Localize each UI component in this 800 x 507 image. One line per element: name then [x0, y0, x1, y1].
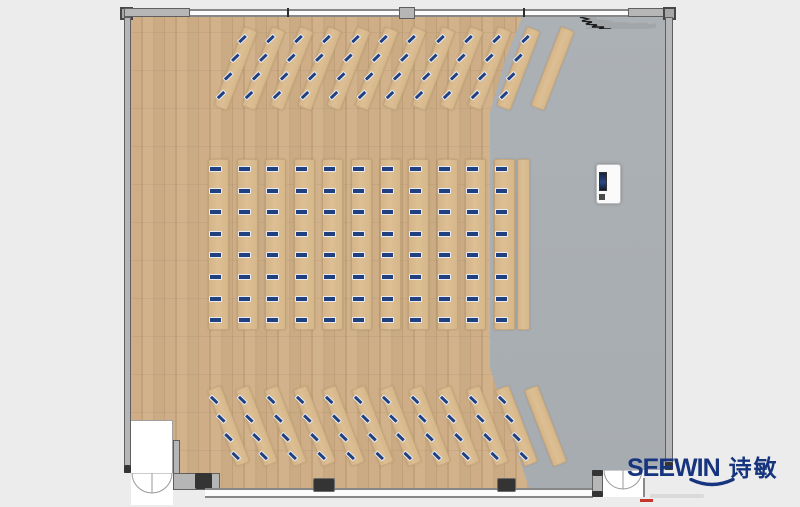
laptop-seat [484, 52, 495, 63]
laptop-seat [323, 166, 336, 172]
laptop-seat [222, 70, 233, 81]
laptop-seat [266, 188, 279, 194]
laptop-seat [420, 70, 431, 81]
laptop-seat [409, 188, 422, 194]
left-wall-end-cap [124, 465, 131, 473]
laptop-seat [406, 33, 417, 44]
laptop-seat [266, 296, 279, 302]
laptop-seat [438, 166, 451, 172]
laptop-seat [323, 394, 334, 405]
laptop-seat [257, 52, 268, 63]
laptop-seat [495, 274, 508, 280]
laptop-seat [498, 89, 509, 100]
laptop-seat [381, 166, 394, 172]
laptop-seat [266, 231, 279, 237]
laptop-seat [323, 231, 336, 237]
laptop-seat [244, 413, 255, 424]
laptop-seat [229, 52, 240, 63]
laptop-seat [238, 209, 251, 215]
laptop-seat [409, 317, 422, 323]
laptop-seat [366, 432, 377, 443]
laptop-seat [467, 394, 478, 405]
laptop-seat [238, 231, 251, 237]
laptop-seat [495, 188, 508, 194]
laptop-seat [352, 231, 365, 237]
laptop-seat [378, 33, 389, 44]
laptop-seat [238, 274, 251, 280]
water-dispenser [596, 164, 621, 204]
laptop-seat [495, 252, 508, 258]
laptop-seat [302, 413, 313, 424]
laptop-seat [345, 450, 356, 461]
laptop-seat [323, 188, 336, 194]
laptop-seat [266, 274, 279, 280]
laptop-seat [453, 432, 464, 443]
laptop-seat [321, 33, 332, 44]
laptop-seat [238, 296, 251, 302]
laptop-seat [466, 188, 479, 194]
laptop-seat [209, 209, 222, 215]
top-wall-post [399, 7, 415, 19]
laptop-seat [356, 89, 367, 100]
laptop-seat [399, 52, 410, 63]
laptop-seat [323, 209, 336, 215]
logo-smile-arc-icon [689, 478, 735, 489]
laptop-seat [209, 231, 222, 237]
laptop-seat [352, 317, 365, 323]
laptop-seat [395, 432, 406, 443]
laptop-seat [243, 89, 254, 100]
laptop-seat [381, 209, 394, 215]
laptop-seat [352, 188, 365, 194]
laptop-seat [237, 394, 248, 405]
laptop-seat [495, 317, 508, 323]
laptop-seat [512, 52, 523, 63]
laptop-seat [295, 274, 308, 280]
laptop-seat [495, 231, 508, 237]
laptop-seat [503, 413, 514, 424]
laptop-seat [208, 394, 219, 405]
laptop-seat [381, 296, 394, 302]
top-window-wall-a [190, 9, 399, 17]
desk-center-block [408, 159, 429, 330]
laptop-seat [209, 166, 222, 172]
laptop-seat [238, 166, 251, 172]
top-wall-solid-right [628, 8, 665, 17]
laptop-seat [466, 209, 479, 215]
laptop-seat [222, 432, 233, 443]
laptop-seat [250, 70, 261, 81]
laptop-seat [466, 166, 479, 172]
bottom-wall-column-b [497, 478, 516, 492]
top-wall-solid-left [124, 8, 190, 17]
laptop-seat [209, 252, 222, 258]
laptop-seat [466, 274, 479, 280]
laptop-seat [323, 252, 336, 258]
laptop-seat [438, 274, 451, 280]
laptop-seat [294, 394, 305, 405]
laptop-seat [352, 166, 365, 172]
desk-layer [0, 0, 800, 507]
laptop-seat [230, 450, 241, 461]
right-door-post-cap-top [592, 470, 603, 476]
laptop-seat [236, 33, 247, 44]
laptop-seat [323, 296, 336, 302]
laptop-seat [295, 296, 308, 302]
laptop-seat [417, 413, 428, 424]
desk-center-block [351, 159, 372, 330]
laptop-seat [438, 252, 451, 258]
laptop-seat [293, 33, 304, 44]
laptop-seat [352, 252, 365, 258]
laptop-seat [266, 317, 279, 323]
desk-center-block [294, 159, 315, 330]
laptop-seat [359, 413, 370, 424]
laptop-seat [271, 89, 282, 100]
laptop-seat [335, 70, 346, 81]
laptop-seat [338, 432, 349, 443]
laptop-seat [238, 188, 251, 194]
right-door-post-cap-bottom [592, 491, 603, 497]
laptop-seat [463, 33, 474, 44]
laptop-seat [392, 70, 403, 81]
laptop-seat [295, 317, 308, 323]
laptop-seat [215, 89, 226, 100]
laptop-seat [424, 432, 435, 443]
laptop-seat [438, 209, 451, 215]
laptop-seat [474, 413, 485, 424]
laptop-seat [323, 274, 336, 280]
left-wall [124, 17, 131, 473]
laptop-seat [519, 33, 530, 44]
wall-joint-tick [523, 8, 525, 17]
laptop-seat [477, 70, 488, 81]
laptop-seat [460, 450, 471, 461]
dispenser-tap-icon [599, 194, 605, 200]
laptop-seat [295, 209, 308, 215]
laptop-seat [381, 394, 392, 405]
laptop-seat [330, 413, 341, 424]
entry-alcove-left [131, 420, 173, 473]
desk-center-block [494, 159, 515, 330]
laptop-seat [209, 188, 222, 194]
laptop-seat [466, 317, 479, 323]
laptop-seat [328, 89, 339, 100]
laptop-seat [438, 317, 451, 323]
laptop-seat [495, 166, 508, 172]
laptop-seat [438, 296, 451, 302]
laptop-seat [409, 209, 422, 215]
laptop-seat [438, 188, 451, 194]
laptop-seat [266, 166, 279, 172]
desk-center-block [465, 159, 486, 330]
laptop-seat [409, 252, 422, 258]
laptop-seat [466, 296, 479, 302]
empty-desk-center-block [517, 159, 530, 330]
brand-logo: SEEWIN 诗敏 [627, 456, 779, 488]
desk-center-block [265, 159, 286, 330]
laptop-seat [258, 450, 269, 461]
laptop-seat [446, 413, 457, 424]
laptop-seat [409, 274, 422, 280]
laptop-seat [209, 296, 222, 302]
laptop-seat [363, 70, 374, 81]
double-door-left [131, 473, 173, 505]
laptop-seat [456, 52, 467, 63]
laptop-seat [316, 450, 327, 461]
laptop-seat [431, 450, 442, 461]
laptop-seat [427, 52, 438, 63]
laptop-seat [381, 231, 394, 237]
laptop-seat [352, 209, 365, 215]
laptop-seat [307, 70, 318, 81]
laptop-seat [300, 89, 311, 100]
laptop-seat [352, 274, 365, 280]
laptop-seat [280, 432, 291, 443]
laptop-seat [413, 89, 424, 100]
dispenser-screen-icon [599, 172, 607, 191]
logo-shadow-streak [650, 494, 704, 498]
laptop-seat [309, 432, 320, 443]
laptop-seat [209, 274, 222, 280]
laptop-seat [388, 413, 399, 424]
laptop-seat [510, 432, 521, 443]
top-window-wall-b [415, 9, 628, 17]
laptop-seat [209, 317, 222, 323]
bottom-wall-column-a [313, 478, 335, 492]
laptop-seat [323, 317, 336, 323]
bottom-window-wall [205, 488, 593, 498]
laptop-seat [295, 252, 308, 258]
desk-center-block [380, 159, 401, 330]
laptop-seat [410, 394, 421, 405]
laptop-seat [409, 296, 422, 302]
brand-name-chinese: 诗敏 [729, 456, 779, 481]
laptop-seat [295, 166, 308, 172]
laptop-seat [495, 296, 508, 302]
laptop-seat [434, 33, 445, 44]
laptop-seat [495, 209, 508, 215]
laptop-seat [496, 394, 507, 405]
laptop-seat [385, 89, 396, 100]
desk-center-block [322, 159, 343, 330]
laptop-seat [238, 252, 251, 258]
laptop-seat [448, 70, 459, 81]
laptop-seat [295, 188, 308, 194]
laptop-seat [266, 252, 279, 258]
laptop-seat [314, 52, 325, 63]
floor-plan-canvas: SEEWIN 诗敏 [0, 0, 800, 507]
laptop-seat [265, 33, 276, 44]
laptop-seat [251, 432, 262, 443]
right-wall [665, 17, 673, 470]
laptop-seat [409, 231, 422, 237]
laptop-seat [381, 188, 394, 194]
desk-center-block [437, 159, 458, 330]
laptop-seat [441, 89, 452, 100]
laptop-seat [342, 52, 353, 63]
laptop-seat [489, 450, 500, 461]
laptop-seat [352, 394, 363, 405]
laptop-seat [470, 89, 481, 100]
laptop-seat [374, 450, 385, 461]
laptop-seat [286, 52, 297, 63]
laptop-seat [352, 296, 365, 302]
laptop-seat [295, 231, 308, 237]
laptop-seat [279, 70, 290, 81]
laptop-seat [381, 317, 394, 323]
laptop-seat [438, 231, 451, 237]
desk-center-block [237, 159, 258, 330]
laptop-seat [482, 432, 493, 443]
laptop-seat [266, 209, 279, 215]
laptop-seat [287, 450, 298, 461]
laptop-seat [505, 70, 516, 81]
laptop-seat [491, 33, 502, 44]
wall-joint-tick [287, 8, 289, 17]
laptop-seat [409, 166, 422, 172]
laptop-seat [438, 394, 449, 405]
laptop-seat [371, 52, 382, 63]
small-red-mark [640, 499, 653, 502]
laptop-seat [350, 33, 361, 44]
laptop-seat [518, 450, 529, 461]
laptop-seat [381, 274, 394, 280]
laptop-seat [466, 231, 479, 237]
laptop-seat [238, 317, 251, 323]
laptop-seat [402, 450, 413, 461]
laptop-seat [381, 252, 394, 258]
laptop-seat [466, 252, 479, 258]
laptop-seat [266, 394, 277, 405]
desk-center-block [208, 159, 229, 330]
laptop-seat [273, 413, 284, 424]
laptop-seat [215, 413, 226, 424]
vestibule-post [195, 473, 212, 489]
